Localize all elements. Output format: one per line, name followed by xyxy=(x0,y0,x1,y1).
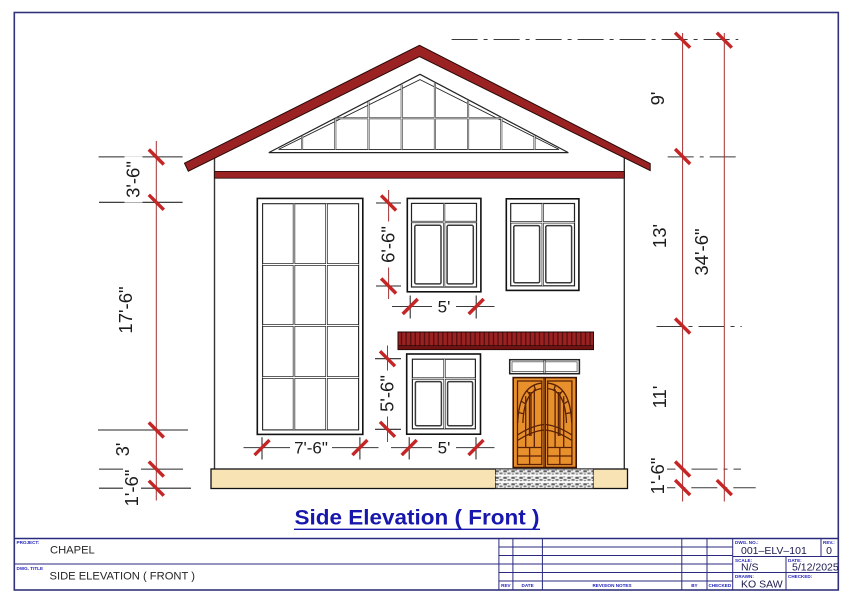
svg-text:9': 9' xyxy=(647,92,668,106)
svg-text:5/12/2025: 5/12/2025 xyxy=(792,562,839,574)
svg-text:3': 3' xyxy=(112,443,133,457)
svg-text:BY: BY xyxy=(691,583,697,588)
svg-text:CHAPEL: CHAPEL xyxy=(50,545,95,557)
svg-text:1'-6": 1'-6" xyxy=(121,470,142,507)
svg-text:N/S: N/S xyxy=(741,562,759,574)
svg-text:0: 0 xyxy=(826,545,832,557)
svg-text:001–ELV–101: 001–ELV–101 xyxy=(741,545,807,557)
svg-text:34'-6": 34'-6" xyxy=(691,228,712,275)
svg-text:13': 13' xyxy=(649,224,670,248)
svg-text:DATE: DATE xyxy=(522,583,534,588)
svg-text:CHECKED:: CHECKED: xyxy=(788,574,813,579)
svg-text:SIDE ELEVATION ( FRONT ): SIDE ELEVATION ( FRONT ) xyxy=(50,571,196,583)
svg-text:5': 5' xyxy=(438,298,451,317)
svg-text:17'-6": 17'-6" xyxy=(115,286,136,333)
svg-text:6'-6": 6'-6" xyxy=(378,226,399,263)
svg-text:REV: REV xyxy=(501,583,511,588)
svg-text:1'-6": 1'-6" xyxy=(647,458,668,495)
svg-text:DWG. TITLE: DWG. TITLE xyxy=(17,566,44,571)
svg-text:5'-6": 5'-6" xyxy=(377,375,398,412)
svg-text:REVISION NOTES: REVISION NOTES xyxy=(592,583,631,588)
svg-text:Side Elevation ( Front ): Side Elevation ( Front ) xyxy=(295,506,540,530)
svg-text:CHECKED: CHECKED xyxy=(708,583,731,588)
svg-text:5': 5' xyxy=(438,439,451,458)
svg-text:7'-6": 7'-6" xyxy=(294,439,328,458)
svg-text:11': 11' xyxy=(649,386,670,409)
svg-text:KO SAW: KO SAW xyxy=(741,579,783,591)
svg-text:PROJECT:: PROJECT: xyxy=(17,540,40,545)
svg-text:3'-6": 3'-6" xyxy=(123,161,144,198)
